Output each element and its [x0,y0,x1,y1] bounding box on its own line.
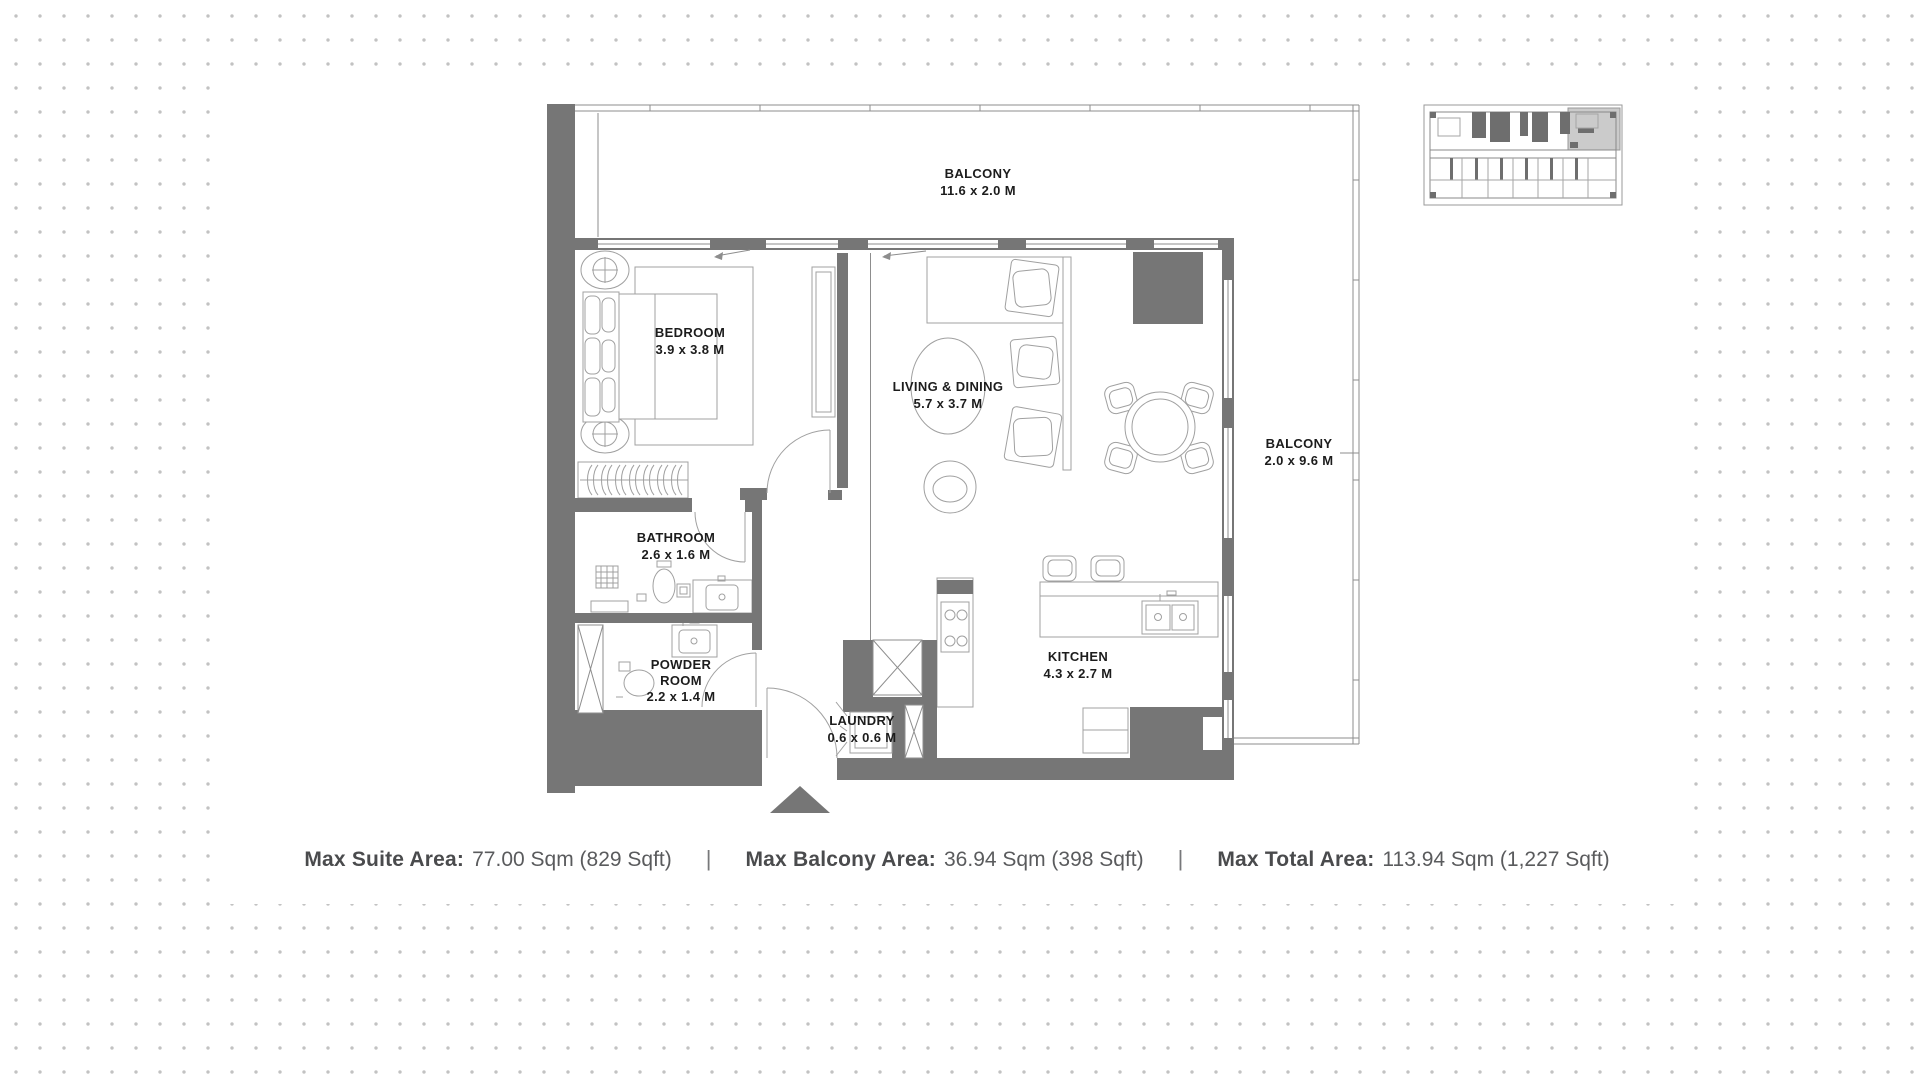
room-name: BEDROOM [655,325,725,341]
room-name: BALCONY [1265,436,1334,452]
room-dims: 11.6 x 2.0 M [940,183,1016,199]
page-background: BALCONY 11.6 x 2.0 M BEDROOM 3.9 x 3.8 M… [0,0,1920,1078]
structural-column [1133,252,1203,324]
room-name: KITCHEN [1044,649,1113,665]
room-dims: 3.9 x 3.8 M [655,342,725,358]
room-dims: 2.0 x 9.6 M [1265,453,1334,469]
bathroom-fixtures [591,561,752,613]
key-plan [1420,98,1632,213]
room-name: BALCONY [940,166,1016,182]
stat-balcony-area: Max Balcony Area:36.94 Sqm (398 Sqft) [745,848,1143,872]
stat-value: 36.94 Sqm (398 Sqft) [944,848,1144,871]
area-stats-bar: Max Suite Area:77.00 Sqm (829 Sqft) | Ma… [304,846,1609,872]
room-label-powder-room: POWDER ROOM 2.2 x 1.4 M [638,657,724,705]
room-name: POWDER ROOM [638,657,724,688]
room-label-kitchen: KITCHEN 4.3 x 2.7 M [1044,649,1113,681]
stat-label: Max Suite Area: [304,848,464,871]
room-dims: 5.7 x 3.7 M [893,396,1004,412]
stat-label: Max Balcony Area: [745,848,936,871]
room-dims: 0.6 x 0.6 M [828,730,897,746]
entrance-arrow [770,786,830,813]
room-label-bathroom: BATHROOM 2.6 x 1.6 M [637,530,715,562]
stat-value: 113.94 Sqm (1,227 Sqft) [1382,848,1609,871]
bedroom-furniture [578,251,835,498]
room-dims: 2.6 x 1.6 M [637,547,715,563]
room-label-living-dining: LIVING & DINING 5.7 x 3.7 M [893,379,1004,411]
room-name: LAUNDRY [828,713,897,729]
stat-total-area: Max Total Area:113.94 Sqm (1,227 Sqft) [1217,848,1609,872]
room-dims: 4.3 x 2.7 M [1044,666,1113,682]
room-label-bedroom: BEDROOM 3.9 x 3.8 M [655,325,725,357]
stats-separator: | [706,846,712,872]
stat-value: 77.00 Sqm (829 Sqft) [472,848,672,871]
room-dims: 2.2 x 1.4 M [638,689,724,705]
room-name: BATHROOM [637,530,715,546]
floor-plan-drawing [0,0,1920,1078]
room-label-balcony-right: BALCONY 2.0 x 9.6 M [1265,436,1334,468]
stat-label: Max Total Area: [1217,848,1374,871]
room-name: LIVING & DINING [893,379,1004,395]
stats-separator: | [1178,846,1184,872]
stat-suite-area: Max Suite Area:77.00 Sqm (829 Sqft) [304,848,671,872]
room-label-balcony-top: BALCONY 11.6 x 2.0 M [940,166,1016,198]
room-label-laundry: LAUNDRY 0.6 x 0.6 M [828,713,897,745]
